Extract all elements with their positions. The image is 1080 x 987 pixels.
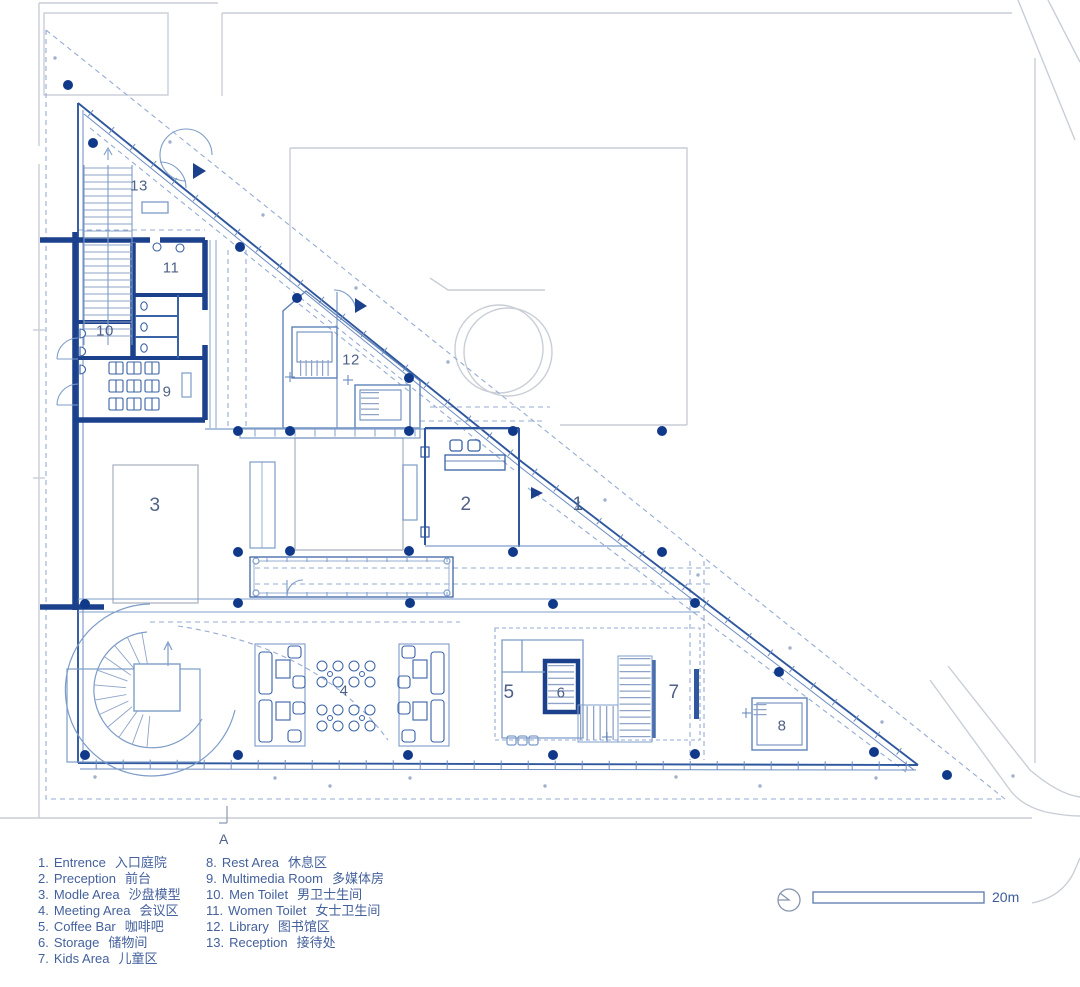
section-marker-label: A xyxy=(219,831,228,847)
legend-item-en: Coffee Bar xyxy=(54,919,116,934)
legend-column-1: 1.Entrence入口庭院 2.Preception前台 3.Modle Ar… xyxy=(38,855,181,967)
legend-item-zh: 前台 xyxy=(125,871,151,886)
room-label-8: 8 xyxy=(778,718,787,735)
legend-item: 9.Multimedia Room多媒体房 xyxy=(206,871,384,887)
legend-item-zh: 咖啡吧 xyxy=(125,919,164,934)
legend-item-number: 11. xyxy=(206,903,223,918)
legend-item-number: 8. xyxy=(206,855,217,870)
room-label-11: 11 xyxy=(163,260,180,277)
legend-item-zh: 会议区 xyxy=(139,903,178,918)
legend-item-en: Library xyxy=(229,919,269,934)
legend-item: 7.Kids Area儿童区 xyxy=(38,951,181,967)
legend-item-zh: 儿童区 xyxy=(119,951,158,966)
room-label-12: 12 xyxy=(342,352,360,369)
legend-item-en: Meeting Area xyxy=(54,903,131,918)
legend-item-zh: 接待处 xyxy=(297,935,336,950)
legend-item-number: 2. xyxy=(38,871,49,886)
legend-item-number: 6. xyxy=(38,935,49,950)
legend-item-number: 4. xyxy=(38,903,49,918)
legend-item-en: Kids Area xyxy=(54,951,110,966)
section-marker xyxy=(219,806,227,823)
room-label-13: 13 xyxy=(130,178,148,195)
legend-item-en: Entrence xyxy=(54,855,106,870)
room-label-1: 1 xyxy=(572,494,583,516)
legend-item: 6.Storage储物间 xyxy=(38,935,181,951)
legend-item-number: 5. xyxy=(38,919,49,934)
legend-item-en: Storage xyxy=(54,935,100,950)
corridor-lines xyxy=(210,240,216,428)
room-label-10: 10 xyxy=(96,323,114,340)
room-label-3: 3 xyxy=(149,495,160,517)
legend-item-en: Preception xyxy=(54,871,116,886)
legend-item-number: 1. xyxy=(38,855,49,870)
legend-item-number: 7. xyxy=(38,951,49,966)
scale-bar xyxy=(813,892,984,903)
site-context xyxy=(0,0,1080,903)
spiral-stair-landing xyxy=(134,642,180,711)
legend-item: 11.Women Toilet女士卫生间 xyxy=(206,903,384,919)
room-label-5: 5 xyxy=(503,682,514,704)
legend-item: 5.Coffee Bar咖啡吧 xyxy=(38,919,181,935)
legend-item-en: Reception xyxy=(229,935,288,950)
south-zone-lines xyxy=(78,599,700,612)
legend-item-number: 12. xyxy=(206,919,224,934)
legend-item-number: 9. xyxy=(206,871,217,886)
room-label-7: 7 xyxy=(668,682,679,704)
legend-item-zh: 储物间 xyxy=(108,935,147,950)
multimedia-seats xyxy=(109,362,159,410)
legend-item-zh: 男卫士生间 xyxy=(297,887,362,902)
legend-item-number: 13. xyxy=(206,935,224,950)
courtyard-bands xyxy=(205,428,519,597)
legend-item: 12.Library图书馆区 xyxy=(206,919,384,935)
site-boundary-dashed xyxy=(46,30,1005,799)
legend-item-zh: 入口庭院 xyxy=(115,855,167,870)
north-indicator-icon xyxy=(778,889,800,911)
floor-plan-drawing xyxy=(0,0,1080,987)
legend-item-en: Women Toilet xyxy=(228,903,306,918)
legend-item-zh: 女士卫生间 xyxy=(315,903,380,918)
legend-item: 13.Reception接待处 xyxy=(206,935,384,951)
scale-label: 20m xyxy=(992,889,1019,905)
legend-item: 1.Entrence入口庭院 xyxy=(38,855,181,871)
room13-desk xyxy=(142,202,168,213)
legend-item-en: Rest Area xyxy=(222,855,279,870)
stair-main-rails xyxy=(84,148,132,345)
legend-item-zh: 图书馆区 xyxy=(278,919,330,934)
legend-item: 10.Men Toilet男卫士生间 xyxy=(206,887,384,903)
legend-item-en: Multimedia Room xyxy=(222,871,323,886)
room9-lectern xyxy=(182,373,191,397)
floor-plan-canvas: 1 2 3 4 5 6 7 8 9 10 11 12 13 A 20m 1.En… xyxy=(0,0,1080,987)
reception-area-walls xyxy=(421,428,628,547)
room-label-9: 9 xyxy=(163,384,172,401)
legend-item-zh: 沙盘模型 xyxy=(129,887,181,902)
band-mullion-ticks xyxy=(255,430,447,599)
legend-item-en: Men Toilet xyxy=(229,887,288,902)
legend-item-zh: 休息区 xyxy=(288,855,327,870)
legend-item: 3.Modle Area沙盘模型 xyxy=(38,887,181,903)
reception-desk xyxy=(445,440,505,470)
room-label-2: 2 xyxy=(460,494,471,516)
legend-item-zh: 多媒体房 xyxy=(332,871,384,886)
legend-item-number: 10. xyxy=(206,887,224,902)
legend-item: 4.Meeting Area会议区 xyxy=(38,903,181,919)
structural-columns xyxy=(63,80,952,780)
legend-item: 2.Preception前台 xyxy=(38,871,181,887)
legend-item-number: 3. xyxy=(38,887,49,902)
legend-column-2: 8.Rest Area休息区 9.Multimedia Room多媒体房 10.… xyxy=(206,855,384,951)
legend-item-en: Modle Area xyxy=(54,887,120,902)
building-outline xyxy=(78,103,918,765)
legend-item: 8.Rest Area休息区 xyxy=(206,855,384,871)
room-label-4: 4 xyxy=(340,683,349,700)
room-label-6: 6 xyxy=(557,685,566,702)
